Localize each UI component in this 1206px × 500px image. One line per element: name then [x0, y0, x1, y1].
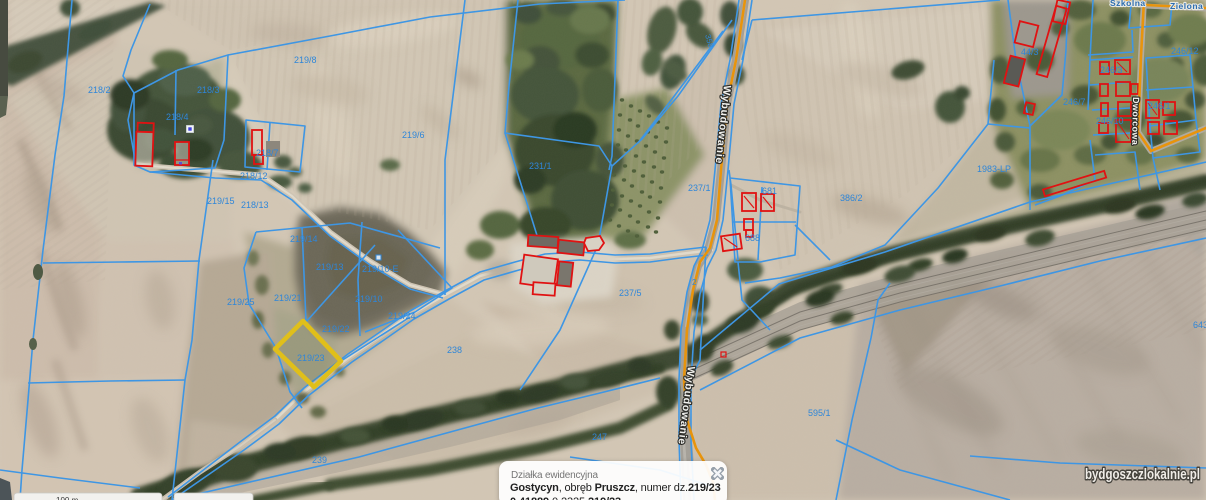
svg-text:386/2: 386/2 [840, 193, 863, 203]
svg-text:246/7: 246/7 [1063, 97, 1086, 107]
svg-text:237/5: 237/5 [619, 288, 642, 298]
svg-text:44/3: 44/3 [1021, 47, 1039, 57]
svg-text:218/3: 218/3 [197, 85, 220, 95]
svg-text:219/24: 219/24 [388, 311, 416, 321]
svg-text:219/10-E: 219/10-E [362, 264, 399, 274]
svg-text:Zielona: Zielona [1170, 1, 1203, 11]
svg-text:218/2: 218/2 [88, 85, 111, 95]
svg-text:218/13: 218/13 [241, 200, 269, 210]
svg-text:231/1: 231/1 [529, 161, 552, 171]
svg-text:Szkolna: Szkolna [1110, 0, 1146, 8]
svg-text:238: 238 [447, 345, 462, 355]
svg-text:1983-LP: 1983-LP [977, 164, 1011, 174]
svg-text:2: 2 [692, 278, 697, 287]
svg-text:688: 688 [745, 233, 760, 243]
svg-text:218/12: 218/12 [240, 171, 268, 181]
svg-text:bydgoszczlokalnie.pl: bydgoszczlokalnie.pl [1085, 466, 1200, 483]
svg-text:246/10: 246/10 [1096, 116, 1124, 126]
svg-text:218/7: 218/7 [256, 148, 279, 158]
svg-text:Dworcowa: Dworcowa [1130, 97, 1141, 146]
svg-text:239: 239 [312, 455, 327, 465]
svg-text:218/4: 218/4 [166, 112, 189, 122]
svg-text:246/12: 246/12 [1171, 46, 1199, 56]
svg-text:219/25: 219/25 [227, 297, 255, 307]
svg-text:643: 643 [1193, 320, 1206, 330]
svg-text:219/8: 219/8 [294, 55, 317, 65]
svg-text:246/3: 246/3 [1100, 65, 1123, 75]
svg-text:219/10: 219/10 [355, 294, 383, 304]
svg-text:219/22: 219/22 [322, 324, 350, 334]
svg-text:219/6: 219/6 [402, 130, 425, 140]
svg-text:247: 247 [592, 432, 607, 442]
svg-text:219/15: 219/15 [207, 196, 235, 206]
svg-text:219/13: 219/13 [316, 262, 344, 272]
svg-text:246/1: 246/1 [1148, 101, 1171, 111]
svg-text:237/1: 237/1 [688, 183, 711, 193]
svg-text:219/14: 219/14 [290, 234, 318, 244]
svg-text:681: 681 [762, 186, 777, 196]
svg-text:100 m: 100 m [56, 496, 79, 500]
svg-text:595/1: 595/1 [808, 408, 831, 418]
svg-text:219/21: 219/21 [274, 293, 302, 303]
svg-text:219/23: 219/23 [297, 353, 325, 363]
